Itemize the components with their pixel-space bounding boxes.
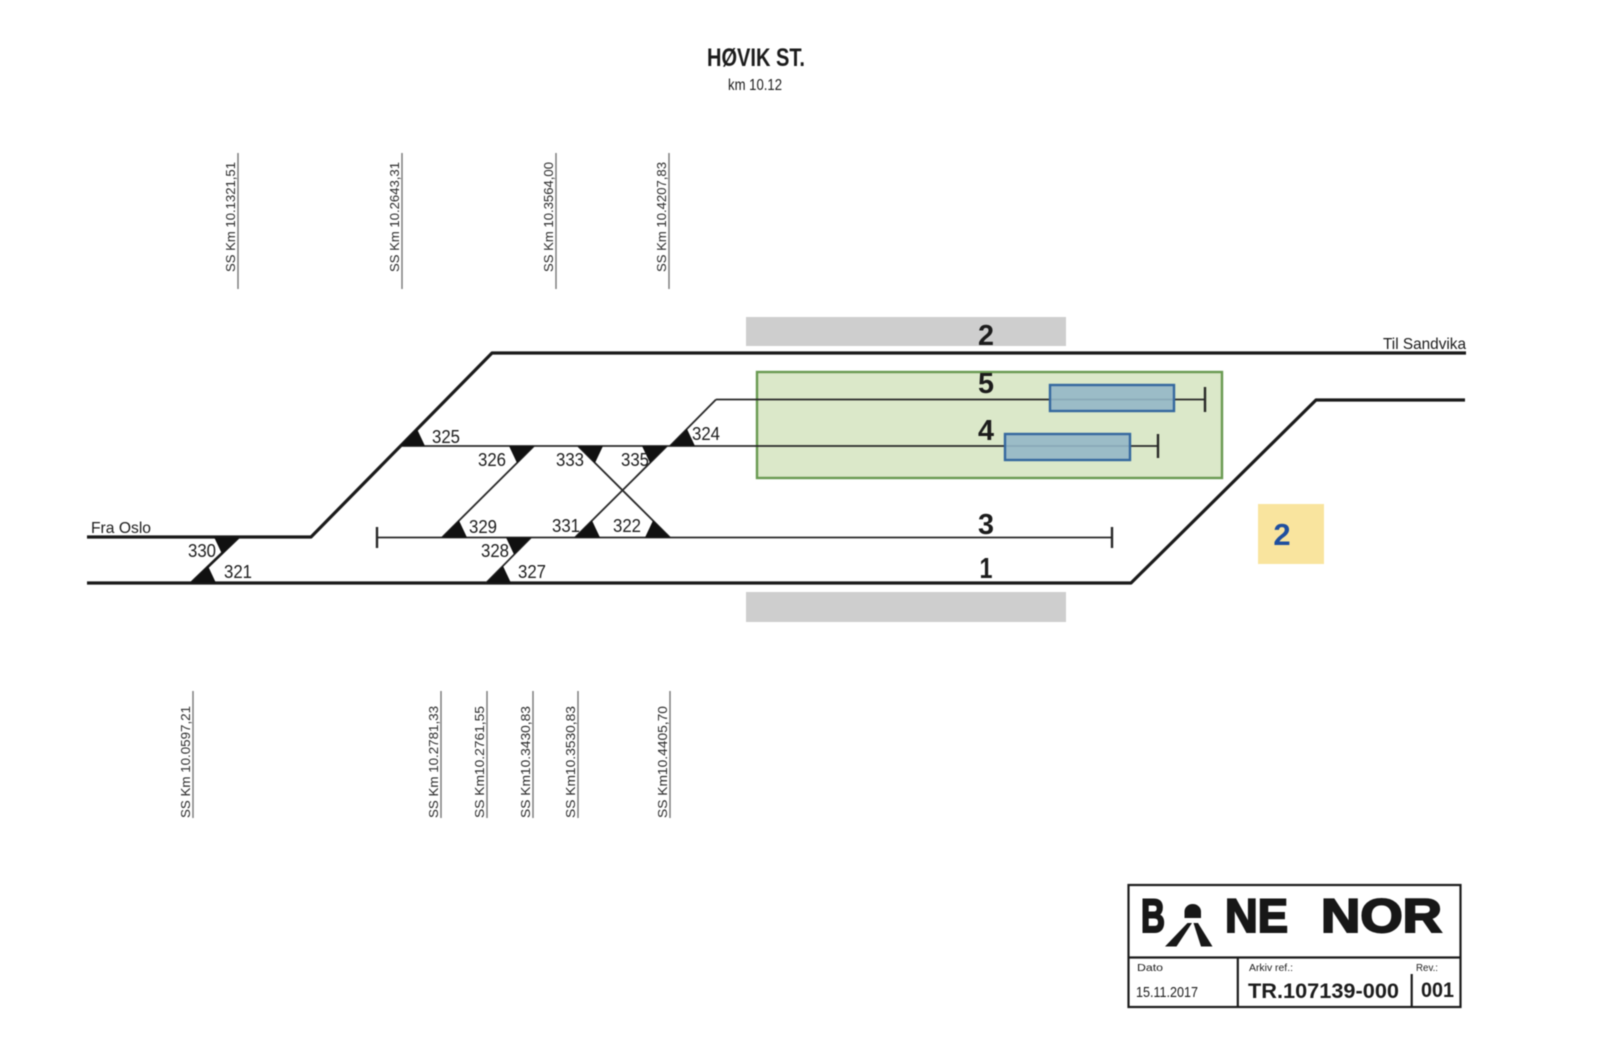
- svg-text:1: 1: [980, 553, 993, 585]
- svg-text:327: 327: [518, 561, 546, 582]
- svg-text:Rev.:: Rev.:: [1416, 963, 1438, 974]
- svg-text:B: B: [1141, 889, 1165, 942]
- svg-text:TR.107139-000: TR.107139-000: [1248, 980, 1399, 1003]
- svg-text:SS Km10.3430,83: SS Km10.3430,83: [518, 706, 533, 818]
- svg-text:SS Km 10.2781,33: SS Km 10.2781,33: [426, 706, 441, 818]
- svg-text:001: 001: [1421, 979, 1454, 1002]
- svg-text:331: 331: [552, 515, 580, 536]
- svg-text:333: 333: [556, 449, 584, 470]
- svg-text:HØVIK ST.: HØVIK ST.: [707, 44, 805, 72]
- svg-text:15.11.2017: 15.11.2017: [1136, 984, 1198, 1001]
- svg-text:324: 324: [692, 423, 720, 444]
- svg-text:SS Km 10.0597,21: SS Km 10.0597,21: [178, 706, 193, 818]
- svg-text:2: 2: [978, 320, 994, 352]
- svg-text:321: 321: [224, 561, 252, 582]
- svg-text:335: 335: [621, 449, 649, 470]
- svg-text:km 10.12: km 10.12: [728, 77, 782, 94]
- svg-text:SS Km10.3530,83: SS Km10.3530,83: [563, 706, 578, 818]
- svg-text:SS Km10.2761,55: SS Km10.2761,55: [472, 706, 487, 818]
- svg-text:329: 329: [469, 516, 497, 537]
- svg-text:322: 322: [613, 515, 641, 536]
- svg-text:328: 328: [481, 540, 509, 561]
- svg-text:SS Km10.4405,70: SS Km10.4405,70: [655, 706, 670, 818]
- svg-text:Arkiv ref.:: Arkiv ref.:: [1249, 963, 1293, 974]
- svg-text:NE: NE: [1225, 889, 1288, 942]
- svg-text:4: 4: [978, 415, 994, 447]
- svg-text:SS Km 10.2643,31: SS Km 10.2643,31: [387, 162, 402, 272]
- svg-text:326: 326: [478, 449, 506, 470]
- svg-text:2: 2: [1273, 517, 1290, 552]
- svg-text:SS Km 10.3564,00: SS Km 10.3564,00: [541, 162, 556, 272]
- svg-text:Fra Oslo: Fra Oslo: [91, 520, 151, 537]
- svg-text:Til Sandvika: Til Sandvika: [1383, 336, 1466, 353]
- svg-text:3: 3: [978, 509, 994, 541]
- svg-text:SS Km 10.1321,51: SS Km 10.1321,51: [223, 162, 238, 272]
- svg-text:SS Km 10.4207,83: SS Km 10.4207,83: [654, 162, 669, 272]
- svg-text:330: 330: [188, 540, 216, 561]
- svg-text:NOR: NOR: [1321, 889, 1442, 942]
- svg-text:5: 5: [978, 368, 994, 400]
- svg-text:325: 325: [432, 426, 460, 447]
- svg-text:Dato: Dato: [1137, 963, 1164, 974]
